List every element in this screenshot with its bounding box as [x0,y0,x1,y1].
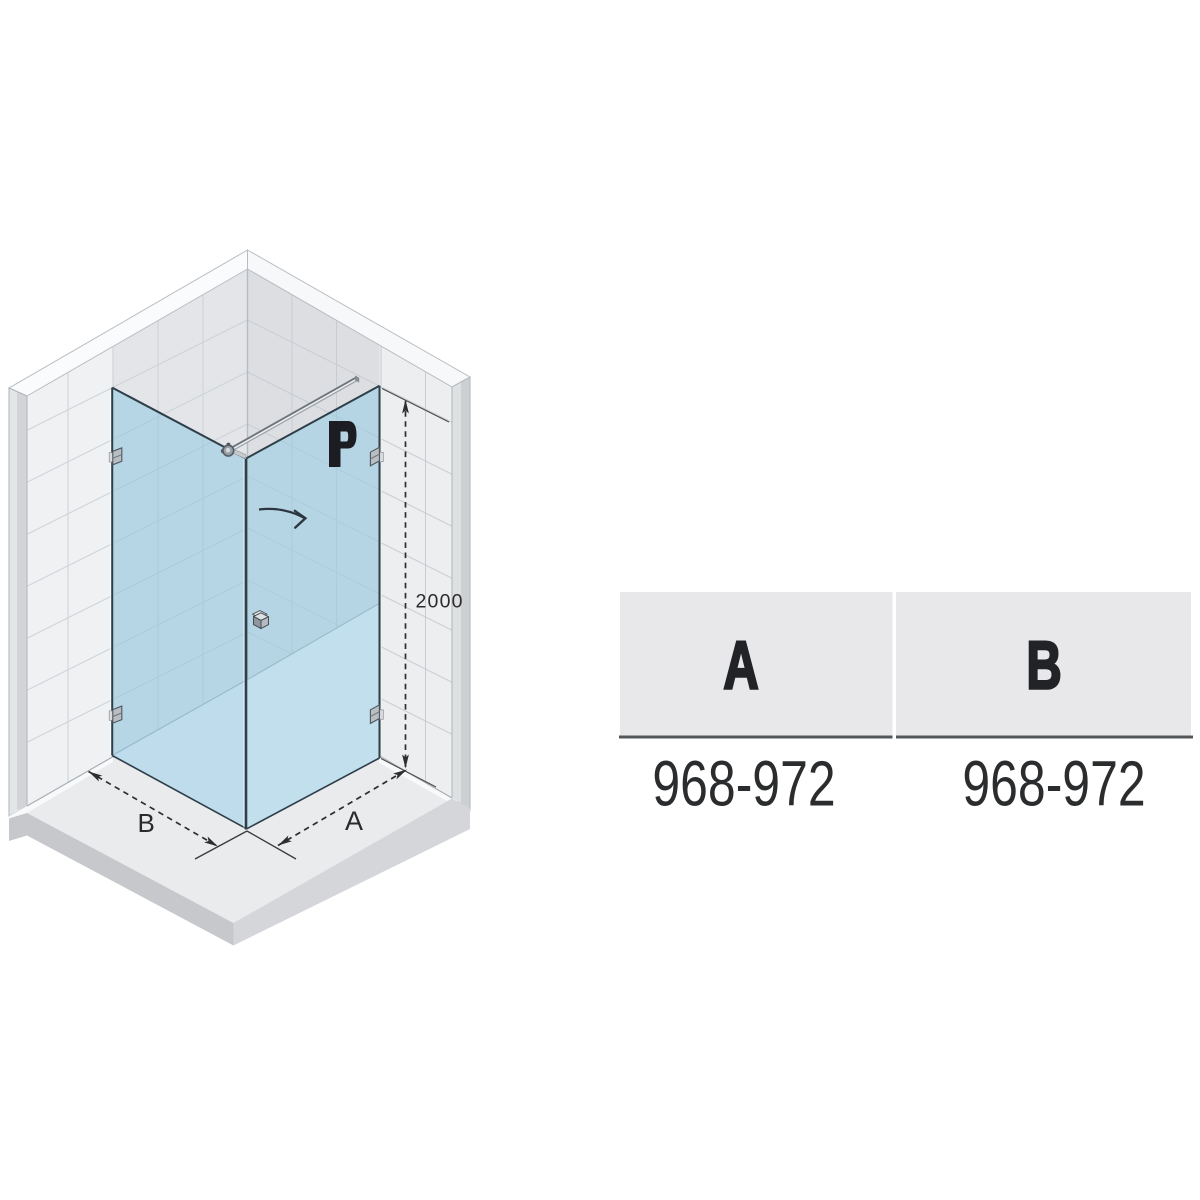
svg-text:968-972: 968-972 [962,749,1145,820]
svg-text:A: A [723,627,758,704]
svg-text:A: A [345,806,363,836]
svg-text:B: B [1026,627,1061,704]
svg-text:968-972: 968-972 [652,749,835,820]
svg-text:B: B [138,808,155,838]
svg-text:2000: 2000 [416,591,464,613]
